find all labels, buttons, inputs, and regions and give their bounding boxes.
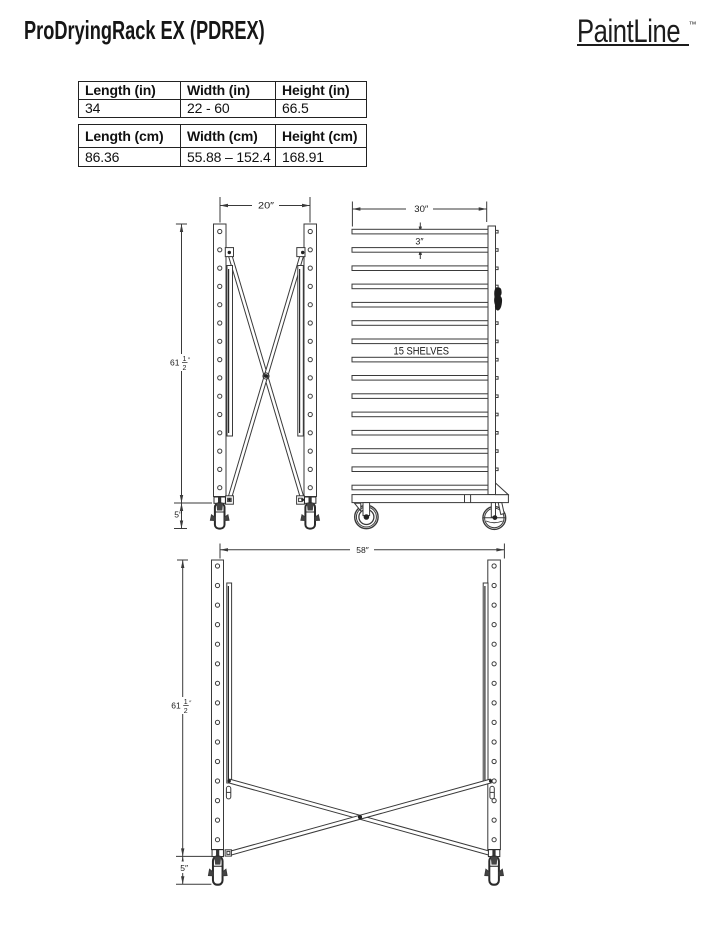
svg-text:″: ″ [189,701,192,707]
svg-text:15 SHELVES: 15 SHELVES [394,346,450,358]
svg-text:″: ″ [188,358,191,364]
svg-text:2: 2 [183,365,187,372]
svg-text:5″: 5″ [180,863,188,873]
svg-text:20″: 20″ [258,200,275,210]
svg-text:1: 1 [183,356,187,363]
svg-text:1: 1 [184,699,188,706]
svg-text:61: 61 [170,358,180,368]
svg-text:61: 61 [171,701,181,711]
svg-text:5″: 5″ [174,510,182,520]
svg-text:58″: 58″ [356,545,369,555]
svg-text:3″: 3″ [415,236,424,246]
svg-text:30″: 30″ [414,204,429,214]
svg-text:2: 2 [184,708,188,715]
